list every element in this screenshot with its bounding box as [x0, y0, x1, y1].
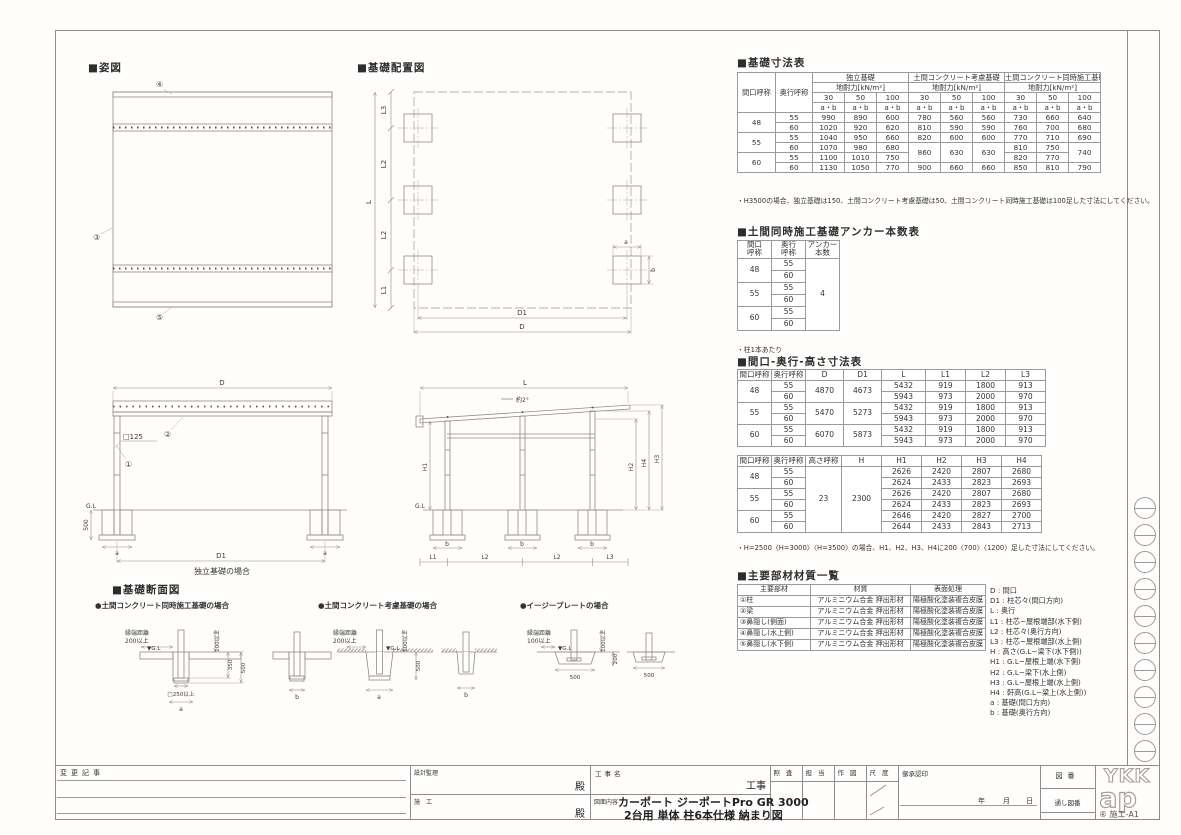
table-cell: 973	[926, 436, 966, 447]
table-cell: 30	[1005, 93, 1037, 103]
columns	[114, 416, 328, 535]
day-label: 日	[1026, 796, 1033, 806]
table-cell: H3	[962, 456, 1002, 467]
table-cell: 2823	[962, 478, 1002, 489]
dim-d1: D1	[216, 552, 226, 560]
table-cell: 55	[772, 425, 806, 436]
table-cell: 2420	[922, 511, 962, 522]
table-cell: 5873	[844, 425, 882, 447]
change-note-line	[57, 797, 406, 798]
table-cell: 1050	[845, 163, 877, 173]
table-cell: 48	[738, 258, 772, 282]
table-cell: a・b	[941, 103, 973, 113]
table-cell: 2700	[1002, 511, 1042, 522]
table-cell: 55	[772, 282, 806, 294]
table-cell: 60	[738, 425, 772, 447]
foundation-dim-table-title: ■基礎寸法表	[737, 55, 805, 70]
table-cell: 60	[772, 414, 806, 425]
size-table-title: ■間口-奥行-高さ寸法表	[737, 354, 862, 369]
column-size-label: □125	[123, 433, 143, 441]
table-cell: H1	[882, 456, 922, 467]
table-cell: 奥行呼称	[772, 370, 806, 381]
table-cell: 760	[1005, 123, 1037, 133]
material-table-title: ■主要部材材質一覧	[737, 568, 840, 583]
table-cell: 950	[845, 133, 877, 143]
table-cell: 820	[909, 133, 941, 143]
legend-item: H4 : 軒高(G.L~梁上(水上側))	[990, 688, 1086, 698]
table-cell: 2693	[1002, 500, 1042, 511]
binder-hole	[1134, 632, 1156, 654]
check-column-label: 照査	[770, 767, 802, 777]
table-cell: 590	[973, 123, 1005, 133]
product-name-line2: 2台用 単体 柱6本仕様 納まり図	[624, 807, 783, 823]
table-cell: 790	[1069, 163, 1101, 173]
gl-marker: ▼G.L	[147, 646, 161, 652]
table-cell: 55	[772, 306, 806, 318]
table-cell: 60	[772, 318, 806, 330]
front-elevation-drawing: D □125 ① ② G.L 500 a	[85, 375, 385, 580]
table-cell: L3	[1006, 370, 1046, 381]
table-cell: 55	[772, 258, 806, 270]
table-cell: 700	[1037, 123, 1069, 133]
table-cell: 5432	[882, 403, 926, 414]
table-cell: 973	[926, 392, 966, 403]
table-cell: 主要部材	[738, 585, 811, 596]
table-cell: 55	[772, 511, 806, 522]
approval-date-line	[900, 805, 1037, 806]
table-cell: H	[842, 456, 882, 467]
table-cell: 50	[845, 93, 877, 103]
part-mark-2: ②	[164, 430, 171, 439]
table-cell: 23	[806, 467, 842, 533]
table-cell: 1100	[813, 153, 845, 163]
table-cell: 1040	[813, 133, 845, 143]
table-cell: 奥行呼称	[772, 456, 806, 467]
columns	[445, 411, 595, 510]
table-cell: 1800	[966, 381, 1006, 392]
legend-item: L : 奥行	[990, 606, 1086, 616]
table-cell: 55	[772, 467, 806, 478]
table-cell: 60	[772, 522, 806, 533]
project-suffix-label: 工事	[716, 777, 766, 792]
table-cell: 4673	[844, 381, 882, 403]
table-cell: 100	[877, 93, 909, 103]
table-cell: 970	[1006, 414, 1046, 425]
month-label: 月	[1003, 796, 1010, 806]
table-cell: 55	[776, 133, 813, 143]
table-cell: アルミニウム合金 押出形材	[811, 596, 911, 607]
foundations	[99, 510, 343, 540]
dim-b: b	[295, 694, 299, 701]
foundation-layout-drawing: L L3 L2 L2 L1 D1 D a b	[355, 50, 675, 350]
legend-item: a : 基礎(間口方向)	[990, 698, 1086, 708]
table-cell: 陽極酸化塗装複合皮膜	[911, 618, 986, 629]
dim-l2: L2	[553, 554, 560, 561]
table-cell: a・b	[813, 103, 845, 113]
legend-item: H1 : G.L~屋根上端(水下側)	[990, 657, 1086, 667]
table-cell: ①柱	[738, 596, 811, 607]
table-cell: 間口呼称	[738, 456, 772, 467]
table-cell: 900	[909, 163, 941, 173]
table-cell: L1	[926, 370, 966, 381]
table-cell: 970	[1006, 436, 1046, 447]
table-cell: 740	[1069, 143, 1101, 163]
table-cell: 60	[772, 436, 806, 447]
legend-item: H3 : G.L~屋根上端(水上側)	[990, 678, 1086, 688]
legend-item: L2 : 柱芯々(奥行方向)	[990, 627, 1086, 637]
dim-a: a	[624, 239, 628, 246]
table-cell: 高さ呼称	[806, 456, 842, 467]
table-cell: 2827	[962, 511, 1002, 522]
table-cell: 2680	[1002, 467, 1042, 478]
table-cell: 2300	[842, 467, 882, 533]
table-cell: 4	[806, 258, 840, 330]
table-cell: 810	[909, 123, 941, 133]
foundation-cross-sections: 縁端距離 200以上 ▼G.L 100以上 350 500 □250以上 a	[85, 578, 745, 728]
case3-detail-a: 縁端距離 100以上 ▼G.L 100以上 200 500	[527, 629, 620, 681]
table-cell: 間口呼称	[738, 370, 772, 381]
table-cell: 1010	[845, 153, 877, 163]
drawing-content-label: 図面内容	[594, 797, 618, 806]
table-cell: 1800	[966, 403, 1006, 414]
dim-500: 500	[83, 519, 90, 531]
ykk-ap-logo: YKK ap	[1096, 764, 1160, 810]
case1-detail-a: 縁端距離 200以上 ▼G.L 100以上 350 500 □250以上 a	[125, 629, 247, 713]
table-cell: 50	[941, 93, 973, 103]
table-cell: ③鼻隠し(側面)	[738, 618, 811, 629]
dimension-legend: D : 間口D1 : 柱芯々(間口方向)L : 奥行L1 : 柱芯~屋根端部(水…	[990, 586, 1086, 719]
binder-hole	[1134, 686, 1156, 708]
scale-slash-marks	[866, 781, 898, 820]
dim-l: L	[365, 200, 373, 204]
table-cell: 860	[909, 143, 941, 163]
dim-h2: H2	[628, 463, 635, 472]
edge-distance-label: 縁端距離	[125, 629, 149, 637]
legend-item: H : 高さ(G.L~梁下(水下側))	[990, 647, 1086, 657]
binder-hole	[1134, 713, 1156, 735]
drawing-sheet: ■姿図 ■基礎配置図 ■基礎断面図 ●土間コンクリート同時施工基礎の場合 ●土間…	[0, 0, 1181, 835]
dim-100: 100以上	[213, 630, 221, 652]
table-cell: 陽極酸化塗装複合皮膜	[911, 607, 986, 618]
table-cell: 2420	[922, 489, 962, 500]
dim-l: L	[523, 379, 527, 387]
table-cell: 770	[1005, 133, 1037, 143]
dim-l2: L2	[380, 231, 388, 239]
material-list-table: 主要部材材質表面処理①柱アルミニウム合金 押出形材陽極酸化塗装複合皮膜②梁アルミ…	[737, 584, 986, 651]
table-cell: a・b	[1037, 103, 1069, 113]
table-cell: 890	[845, 113, 877, 123]
table-cell: 2646	[882, 511, 922, 522]
dim-250: □250以上	[167, 690, 195, 698]
table-cell: H4	[1002, 456, 1042, 467]
dim-h4: H4	[641, 459, 648, 468]
table-cell: 730	[1005, 113, 1037, 123]
table-cell: 770	[1037, 153, 1069, 163]
table-cell: 60	[776, 123, 813, 133]
edge-distance-value: 200以上	[125, 637, 148, 645]
carport-outline	[414, 92, 631, 308]
tb-line	[1040, 788, 1095, 789]
table-cell: 630	[973, 143, 1005, 163]
dim-h1: H1	[422, 463, 429, 472]
table-cell: 810	[1005, 143, 1037, 153]
table-cell: 1130	[813, 163, 845, 173]
table-cell: 表面処理	[911, 585, 986, 596]
gl-marker: ▼G.L	[558, 646, 572, 652]
binder-hole	[1134, 659, 1156, 681]
year-label: 年	[978, 796, 985, 806]
dono-label: 殿	[560, 805, 585, 820]
table-cell: 919	[926, 425, 966, 436]
dim-h3: H3	[654, 455, 661, 464]
case2-detail-b: b	[441, 632, 497, 699]
table-cell: 5943	[882, 414, 926, 425]
front-elevation-caption: 独立基礎の場合	[194, 566, 250, 576]
case3-detail-b: 500	[627, 633, 675, 679]
foundation-blocks	[398, 108, 647, 290]
table-cell: a・b	[845, 103, 877, 113]
legend-item: D1 : 柱芯々(間口方向)	[990, 596, 1086, 606]
table-cell: 地耐力[kN/m²]	[813, 83, 909, 93]
height-table: 間口呼称奥行呼称高さ呼称HH1H2H3H44855232300262624202…	[737, 455, 1042, 533]
table-cell: 913	[1006, 403, 1046, 414]
serial-no-label: 通し図番	[1040, 797, 1095, 807]
foundations	[430, 510, 610, 540]
table-cell: アルミニウム合金 押出形材	[811, 640, 911, 651]
tb-line	[1040, 812, 1095, 813]
dim-l2: L2	[380, 160, 388, 168]
table-cell: a・b	[909, 103, 941, 113]
roof-beam	[113, 401, 332, 416]
table-cell: 970	[1006, 392, 1046, 403]
table-cell: 48	[738, 113, 776, 133]
width-depth-table: 間口呼称奥行呼称DD1LL1L2L34855487046735432919180…	[737, 369, 1046, 447]
table-cell: 913	[1006, 381, 1046, 392]
ground-level-label: G.L	[86, 503, 97, 510]
table-cell: 2626	[882, 467, 922, 478]
part-mark-1: ①	[125, 460, 132, 469]
dim-500: 500	[644, 673, 655, 679]
table-cell: H2	[922, 456, 962, 467]
table-cell: 5273	[844, 403, 882, 425]
binder-hole	[1134, 740, 1156, 762]
table-cell: 55	[772, 381, 806, 392]
edge-distance-value: 100以上	[527, 637, 550, 645]
table-cell: 60	[772, 478, 806, 489]
table-cell: ②梁	[738, 607, 811, 618]
edge-distance-label: 縁端距離	[333, 629, 357, 637]
table-cell: 660	[1037, 113, 1069, 123]
table-cell: 620	[877, 123, 909, 133]
table-cell: 5943	[882, 392, 926, 403]
table-cell: 30	[909, 93, 941, 103]
dim-l3: L3	[606, 554, 613, 561]
binder-hole	[1134, 551, 1156, 573]
table-cell: 1020	[813, 123, 845, 133]
dim-b: b	[520, 541, 524, 548]
table-cell: 660	[973, 163, 1005, 173]
edge-distance-value: 200以上	[333, 637, 356, 645]
table-cell: 2823	[962, 500, 1002, 511]
table-cell: 750	[877, 153, 909, 163]
dim-b: b	[445, 541, 449, 548]
table-cell: 60	[772, 270, 806, 282]
table-cell: 材質	[811, 585, 911, 596]
table-cell: 560	[973, 113, 1005, 123]
table-cell: 710	[1037, 133, 1069, 143]
dim-500: 500	[241, 662, 247, 673]
table-cell: 2644	[882, 522, 922, 533]
tb-line	[590, 765, 591, 820]
dim-d: D	[519, 323, 524, 331]
table-cell: ⑤鼻隠し(水下側)	[738, 640, 811, 651]
table-cell: 55	[738, 403, 772, 425]
table-cell: 5470	[806, 403, 844, 425]
table-cell: 770	[877, 163, 909, 173]
table-cell: 2433	[922, 478, 962, 489]
table-cell: 60	[776, 143, 813, 153]
part-mark-5: ⑤	[156, 313, 163, 322]
table-cell: a・b	[973, 103, 1005, 113]
table-cell: 55	[738, 133, 776, 153]
table-cell: 5432	[882, 381, 926, 392]
table-cell: 630	[941, 143, 973, 163]
scale-column-label: 尺度	[866, 767, 898, 777]
table-cell: 2807	[962, 467, 1002, 478]
table-cell: 60	[772, 294, 806, 306]
table-cell: 4870	[806, 381, 844, 403]
table-cell: 55	[738, 282, 772, 306]
ground-level-label: G.L	[415, 503, 426, 510]
table-cell: ④鼻隠し(水上側)	[738, 629, 811, 640]
table-cell: 60	[772, 500, 806, 511]
anchor-table-title: ■土間同時施工基礎アンカー本数表	[737, 224, 920, 239]
case1-detail-b: b	[273, 632, 331, 701]
table-cell: 810	[1037, 163, 1069, 173]
change-note-line	[57, 780, 406, 781]
table-cell: 5432	[882, 425, 926, 436]
dono-label: 殿	[560, 778, 585, 793]
table-cell: 2000	[966, 436, 1006, 447]
table-cell: a・b	[1005, 103, 1037, 113]
table-cell: 680	[1069, 123, 1101, 133]
dim-d: D	[219, 379, 224, 387]
table-cell: 60	[772, 392, 806, 403]
legend-item: L1 : 柱芯~屋根端部(水下側)	[990, 617, 1086, 627]
gl-marker: ▼G.L	[386, 646, 400, 652]
drawing-no-label: 図番	[1040, 771, 1095, 781]
dim-l3: L3	[380, 106, 388, 114]
table-cell: 地耐力[kN/m²]	[1005, 83, 1101, 93]
table-cell: 60	[738, 511, 772, 533]
side-elevation-drawing: L 約2° G.L b b b	[415, 375, 755, 580]
dim-l2: L2	[481, 554, 488, 561]
dim-l1: L1	[380, 286, 388, 294]
dim-350: 350	[228, 659, 234, 670]
table-cell: a・b	[877, 103, 909, 113]
table-cell: 820	[1005, 153, 1037, 163]
table-cell: 660	[877, 133, 909, 143]
table-cell: 土間コンクリート考慮基礎	[909, 73, 1005, 83]
table-cell: 土間コンクリート同時施工基礎	[1005, 73, 1101, 83]
design-supervision-label: 設計監理	[414, 768, 438, 777]
table-cell: 2713	[1002, 522, 1042, 533]
table-cell: 地耐力[kN/m²]	[909, 83, 1005, 93]
binder-hole	[1134, 524, 1156, 546]
roof-plan-drawing: ④ ③ ⑤	[85, 50, 345, 328]
change-notes-label: 変更記事	[60, 768, 104, 778]
dim-b: b	[590, 541, 594, 548]
table-cell: 660	[941, 163, 973, 173]
table-cell: 60	[776, 163, 813, 173]
dim-100: 100以上	[599, 630, 607, 652]
table-cell: 560	[941, 113, 973, 123]
charge-column-label: 担当	[802, 767, 834, 777]
table-cell: 2843	[962, 522, 1002, 533]
table-cell: 600	[973, 133, 1005, 143]
table-cell: 100	[1069, 93, 1101, 103]
table-cell: L	[882, 370, 926, 381]
table-cell: 973	[926, 414, 966, 425]
size-table-note: ・H=2500〈H=3000〉〈H=3500〉の場合、H1、H2、H3、H4に2…	[737, 542, 1099, 552]
table-cell: 2433	[922, 522, 962, 533]
table-cell: 陽極酸化塗装複合皮膜	[911, 629, 986, 640]
part-mark-3: ③	[93, 233, 100, 242]
table-cell: 980	[845, 143, 877, 153]
dim-b: b	[650, 268, 657, 272]
tb-line	[898, 765, 899, 820]
table-cell: 55	[772, 403, 806, 414]
case2-detail-a: 縁端距離 200以上 ▼G.L 100以上 500 a	[333, 629, 433, 701]
foundation-dimension-table: 間口呼称奥行呼称独立基礎土間コンクリート考慮基礎土間コンクリート同時施工基礎地耐…	[737, 72, 1101, 173]
table-cell: 55	[772, 489, 806, 500]
table-cell: 600	[941, 133, 973, 143]
table-cell: アルミニウム合金 押出形材	[811, 618, 911, 629]
edge-distance-label: 縁端距離	[527, 629, 551, 637]
part-mark-4: ④	[156, 80, 163, 89]
legend-item: H2 : G.L~梁下(水上側)	[990, 668, 1086, 678]
table-cell: 2433	[922, 500, 962, 511]
table-cell: 690	[1069, 133, 1101, 143]
approval-stamp-label: 御承認印	[902, 768, 928, 778]
slope-label: 約2°	[516, 396, 529, 404]
table-cell: アルミニウム合金 押出形材	[811, 629, 911, 640]
roof-panel	[113, 92, 332, 307]
legend-item: L3 : 柱芯~屋根端部(水上側)	[990, 637, 1086, 647]
binder-hole	[1134, 497, 1156, 519]
table-cell: 100	[973, 93, 1005, 103]
table-cell: 48	[738, 467, 772, 489]
table-cell: 間口 呼称	[738, 241, 772, 259]
table-cell: 600	[877, 113, 909, 123]
foundation-dim-note: ・H3500の場合、独立基礎は150、土間コンクリート考慮基礎は50、土間コンク…	[737, 195, 1154, 205]
table-cell: 60	[738, 153, 776, 173]
sheet-code-label: ® 施工-A1	[1099, 809, 1139, 820]
draw-column-label: 作図	[834, 767, 866, 777]
table-cell: 陽極酸化塗装複合皮膜	[911, 640, 986, 651]
dim-500: 500	[416, 660, 422, 671]
table-cell: 60	[738, 306, 772, 330]
tb-line	[410, 765, 411, 820]
table-cell: 2807	[962, 489, 1002, 500]
table-cell: 奥行呼称	[776, 73, 813, 113]
table-cell: 48	[738, 381, 772, 403]
table-cell: D1	[844, 370, 882, 381]
table-cell: 独立基礎	[813, 73, 909, 83]
table-cell: アンカー 本数	[806, 241, 840, 259]
table-cell: 2624	[882, 478, 922, 489]
table-cell: D	[806, 370, 844, 381]
